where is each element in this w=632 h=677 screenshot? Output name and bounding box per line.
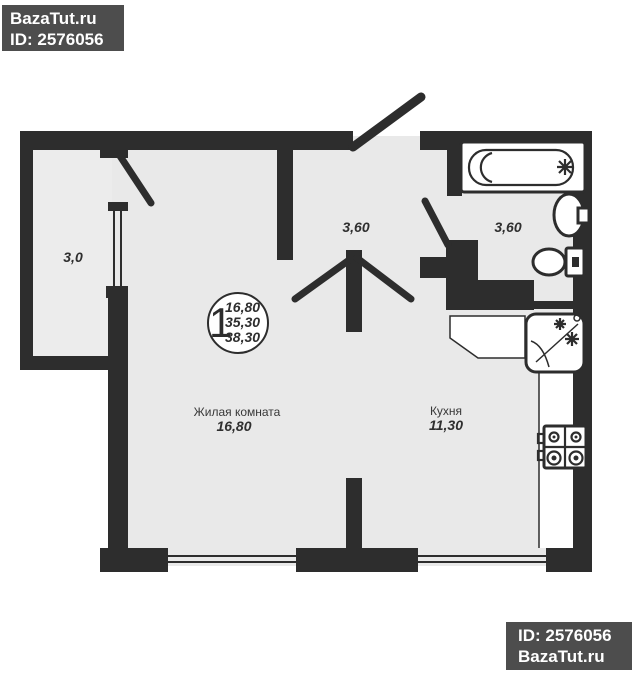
living-hall-wall xyxy=(277,150,293,260)
kitchen-name-label: Кухня xyxy=(430,404,462,418)
balcony-window-cap-top xyxy=(108,202,128,211)
total-area-value: 38,30 xyxy=(225,329,260,345)
living-kitchen-wall xyxy=(346,478,362,550)
watermark-listing-id: ID: 2576056 xyxy=(518,625,626,646)
bottom-wall-center-pier xyxy=(296,548,418,572)
balcony-bottom-wall xyxy=(20,356,110,370)
watermark-site-name: BazaTut.ru xyxy=(10,8,118,29)
toilet-partition-wall xyxy=(534,301,574,309)
living-room-name-label: Жилая комната xyxy=(194,405,281,419)
bathroom-area-label: 3,60 xyxy=(494,219,521,235)
hallway-area-label: 3,60 xyxy=(342,219,369,235)
toilet-flush-button xyxy=(572,257,579,267)
left-wall xyxy=(108,294,128,568)
watermark-bottom: ID: 2576056 BazaTut.ru xyxy=(506,622,632,670)
stove xyxy=(538,426,586,468)
living-room-area-label: 16,80 xyxy=(216,418,251,434)
bottom-wall-left-pier xyxy=(100,548,168,572)
watermark-site-name: BazaTut.ru xyxy=(518,646,626,667)
burner-dot xyxy=(574,456,579,461)
watermark-top: BazaTut.ru ID: 2576056 xyxy=(2,5,124,51)
summary-circle: 1 16,80 35,30 38,30 xyxy=(208,293,268,353)
floorplan-drawing: 1 16,80 35,30 38,30 3,0 3,60 3,60 Жилая … xyxy=(0,0,632,677)
bathtub-drain xyxy=(563,165,567,169)
duct-wall-band xyxy=(446,280,534,310)
burner-dot xyxy=(552,456,557,461)
floorplan-page: 1 16,80 35,30 38,30 3,0 3,60 3,60 Жилая … xyxy=(0,0,632,677)
apartment-area-value: 35,30 xyxy=(225,314,260,330)
bathtub xyxy=(461,142,585,192)
toilet xyxy=(533,248,584,276)
toilet-bowl xyxy=(533,249,565,275)
kitchen-area-label: 11,30 xyxy=(429,417,463,433)
balcony-left-wall xyxy=(20,131,33,370)
wash-basin-tap xyxy=(578,208,589,223)
top-wall-left xyxy=(20,131,353,150)
balcony-area-label: 3,0 xyxy=(63,249,83,265)
kitchen-sink xyxy=(526,314,584,372)
watermark-listing-id: ID: 2576056 xyxy=(10,29,118,50)
living-area-value: 16,80 xyxy=(225,299,260,315)
burner-dot xyxy=(553,436,556,439)
burner-dot xyxy=(575,436,578,439)
sink-faucet-icon-2 xyxy=(565,332,579,346)
bottom-wall-right-pier xyxy=(546,548,592,572)
